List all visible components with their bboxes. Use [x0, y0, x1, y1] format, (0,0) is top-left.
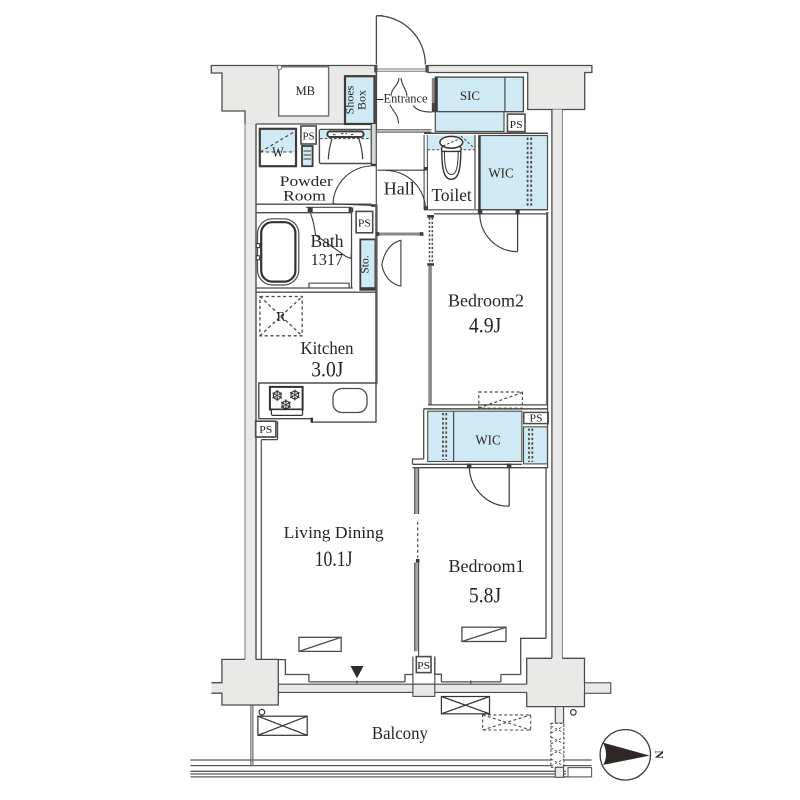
svg-text:SIC: SIC — [460, 88, 480, 103]
svg-text:Bath: Bath — [310, 231, 343, 251]
svg-text:10.1J: 10.1J — [315, 546, 353, 571]
svg-text:Bedroom2: Bedroom2 — [448, 290, 524, 310]
svg-text:MB: MB — [296, 84, 315, 98]
svg-text:5.8J: 5.8J — [469, 582, 502, 607]
svg-text:4.9J: 4.9J — [469, 313, 502, 338]
svg-text:PS: PS — [259, 424, 272, 436]
svg-text:Balcony: Balcony — [372, 723, 428, 743]
svg-text:R: R — [276, 310, 286, 325]
svg-text:Room: Room — [283, 188, 326, 204]
svg-text:3.0J: 3.0J — [311, 357, 343, 382]
svg-text:PS: PS — [510, 119, 523, 131]
svg-text:1317: 1317 — [311, 250, 344, 269]
svg-text:PS: PS — [417, 660, 430, 672]
svg-text:WIC: WIC — [488, 167, 513, 182]
svg-text:Hall: Hall — [384, 179, 415, 199]
svg-text:Bedroom1: Bedroom1 — [449, 556, 525, 576]
svg-text:Sto.: Sto. — [360, 255, 372, 273]
svg-text:Entrance: Entrance — [384, 92, 428, 106]
svg-text:Kitchen: Kitchen — [301, 338, 354, 358]
svg-text:N: N — [653, 750, 665, 759]
svg-text:W: W — [272, 145, 284, 161]
svg-text:Living Dining: Living Dining — [284, 523, 384, 542]
svg-text:WIC: WIC — [475, 434, 500, 449]
svg-text:Box: Box — [355, 90, 369, 110]
svg-text:PS: PS — [303, 131, 315, 143]
svg-text:Toilet: Toilet — [431, 185, 471, 205]
svg-text:PS: PS — [358, 218, 371, 230]
svg-text:PS: PS — [530, 413, 543, 425]
